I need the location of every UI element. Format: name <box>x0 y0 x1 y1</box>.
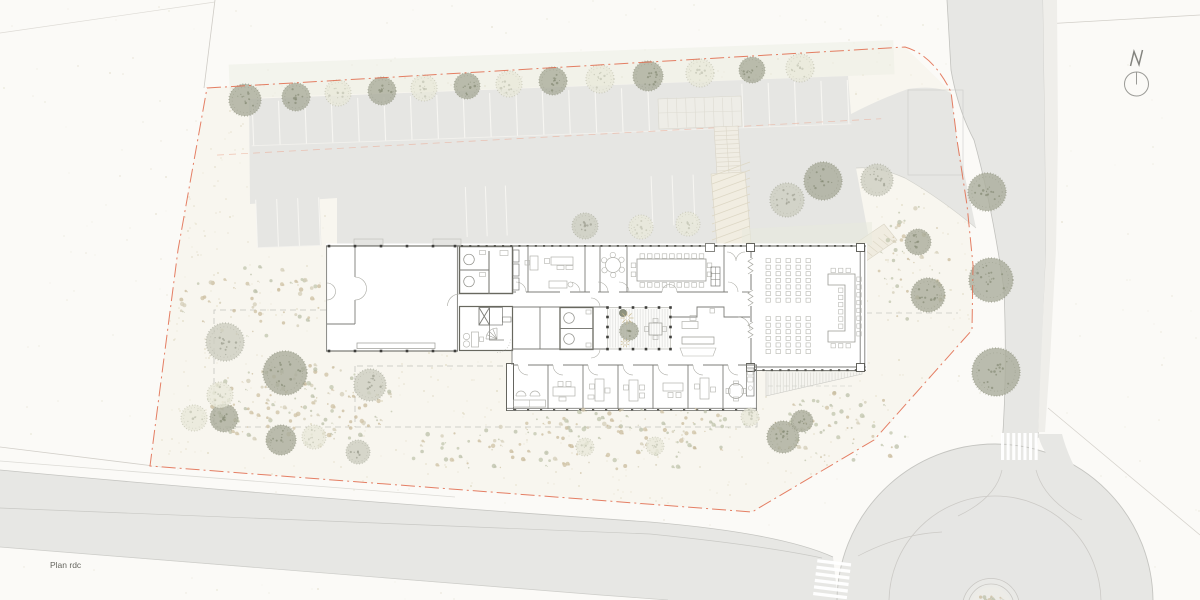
svg-text:Plan rdc: Plan rdc <box>50 560 82 570</box>
